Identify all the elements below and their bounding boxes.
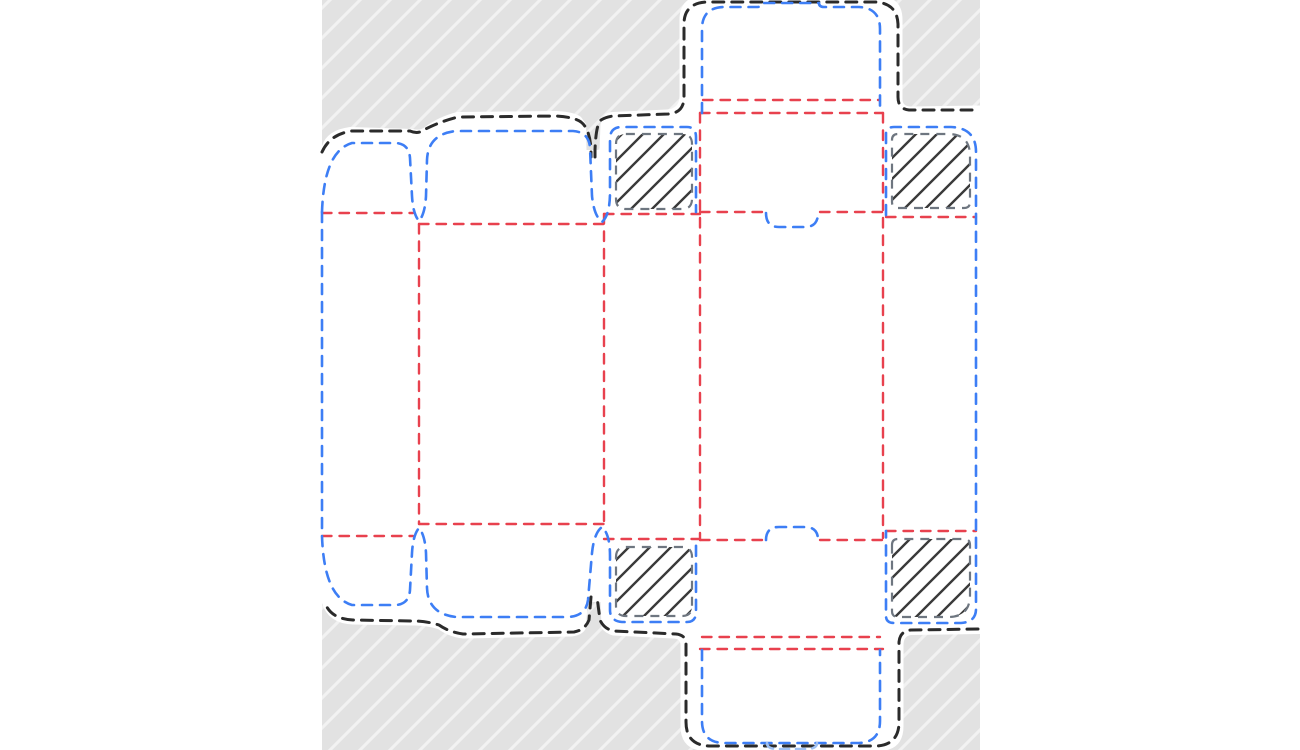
glue-hatch-top-right: [892, 134, 970, 208]
dieline-editor-canvas[interactable]: [0, 0, 1300, 750]
glue-area-top-right[interactable]: [892, 134, 970, 208]
glue-area-bottom-left[interactable]: [616, 547, 692, 616]
glue-hatch-bottom-right: [892, 539, 970, 617]
glue-area-bottom-right[interactable]: [892, 539, 970, 617]
dieline-drawing: [0, 0, 1300, 750]
glue-hatch-top-left: [616, 134, 692, 209]
glue-hatch-bottom-left: [616, 547, 692, 616]
glue-area-top-left[interactable]: [616, 134, 692, 209]
